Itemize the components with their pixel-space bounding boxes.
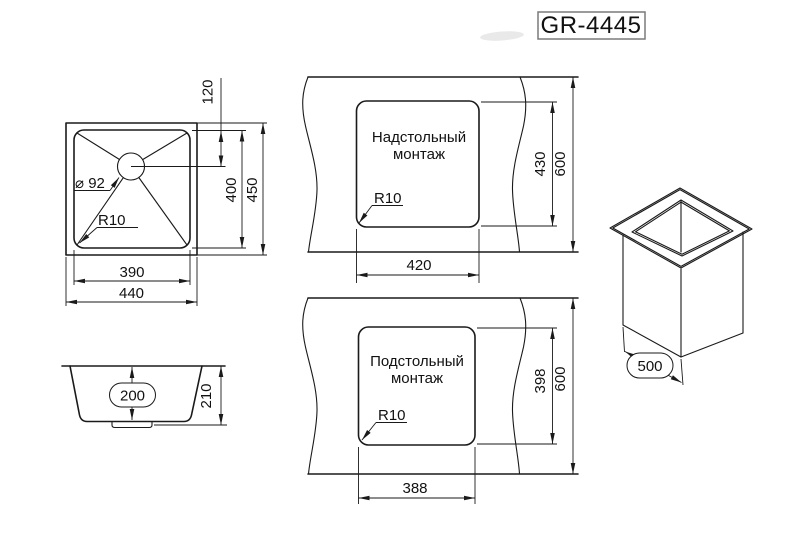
overmount-radius-label: R10	[374, 190, 402, 207]
break-line-left	[303, 298, 317, 474]
corner-radius-label: R10	[98, 212, 126, 229]
undermount-radius-label: R10	[378, 407, 406, 424]
overmount-cutout	[357, 101, 480, 227]
technical-drawing-canvas: GR-4445 ⌀ 92 R10 390	[0, 0, 800, 544]
print-smudge	[480, 30, 525, 42]
overmount-template: Надстольный монтаж R10 420 430 600	[303, 77, 578, 283]
cabinet-body-edges	[623, 232, 743, 357]
overmount-width-value: 420	[406, 257, 431, 274]
break-line-right	[512, 298, 525, 474]
overmount-title-line2: монтаж	[393, 146, 445, 163]
undermount-title-line1: Подстольный	[370, 353, 464, 370]
cabinet-width-value: 500	[637, 358, 662, 375]
top-view: ⌀ 92 R10 390 440 1	[66, 78, 267, 306]
break-line-left	[303, 77, 317, 252]
undermount-radius-callout: R10	[362, 407, 407, 440]
drain-offset-value: 120	[200, 79, 217, 104]
undermount-width-value: 388	[402, 480, 427, 497]
overmount-radius-callout: R10	[359, 190, 403, 223]
model-label: GR-4445	[541, 12, 642, 39]
undermount-title-line2: монтаж	[391, 370, 443, 387]
side-view: 200 210	[62, 366, 227, 428]
overmount-depth-value: 430	[532, 151, 549, 176]
drain-diameter-label: ⌀ 92	[75, 175, 105, 192]
dim-cabinet-width: 500	[623, 327, 683, 385]
outer-width-value: 440	[119, 285, 144, 302]
bowl-height-value: 200	[120, 388, 145, 405]
dim-overmount-depth: 430	[481, 102, 557, 226]
outer-depth-value: 450	[244, 177, 261, 202]
overall-height-value: 210	[198, 383, 215, 408]
dim-bowl-depth: 400	[192, 131, 246, 249]
dim-undermount-depth: 398	[477, 328, 557, 444]
dim-undermount-width: 388	[359, 447, 476, 504]
drain-diameter-callout: ⌀ 92	[74, 175, 119, 192]
overmount-counter-value: 600	[552, 151, 569, 176]
undermount-depth-value: 398	[532, 368, 549, 393]
drain-stub	[112, 422, 152, 428]
bowl-depth-value: 400	[223, 177, 240, 202]
corner-radius-callout: R10	[80, 212, 139, 243]
undermount-template: Подстольный монтаж R10 388 398 600	[303, 298, 578, 504]
overmount-title-line1: Надстольный	[372, 129, 466, 146]
bowl-width-value: 390	[119, 264, 144, 281]
dim-overmount-width: 420	[357, 229, 480, 283]
drawing-sheet: GR-4445 ⌀ 92 R10 390	[0, 0, 800, 544]
dim-undermount-counter: 600	[552, 298, 573, 474]
model-badge: GR-4445	[538, 12, 645, 39]
isometric-view: 500	[610, 188, 752, 385]
undermount-counter-value: 600	[552, 366, 569, 391]
dim-bowl-height: 200	[110, 367, 156, 420]
